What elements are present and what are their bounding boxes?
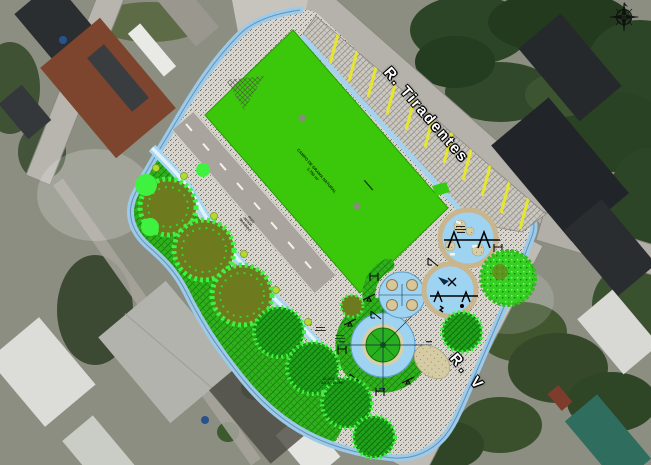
tree-icon — [442, 312, 482, 352]
water-tank — [201, 416, 209, 424]
aerial-map-view: R. Tiradentes R. V CAMPO DE GRAMA NATURA… — [0, 0, 651, 465]
gym-note-line2: AO AR LIVRE — [321, 381, 343, 385]
tree-icon — [341, 295, 363, 317]
tree-icon — [353, 416, 395, 458]
shrub-tree — [135, 174, 157, 196]
water-tank-2 — [59, 36, 67, 44]
shrub-tree — [141, 218, 159, 236]
map-canvas — [0, 0, 651, 465]
tree-icon — [481, 251, 535, 305]
picnic-tables-circle — [379, 272, 425, 318]
gym-area-note: ACADEMIA AO AR LIVRE — [321, 377, 343, 385]
playground-circle-2 — [424, 264, 478, 316]
shrub-tree — [196, 163, 210, 177]
